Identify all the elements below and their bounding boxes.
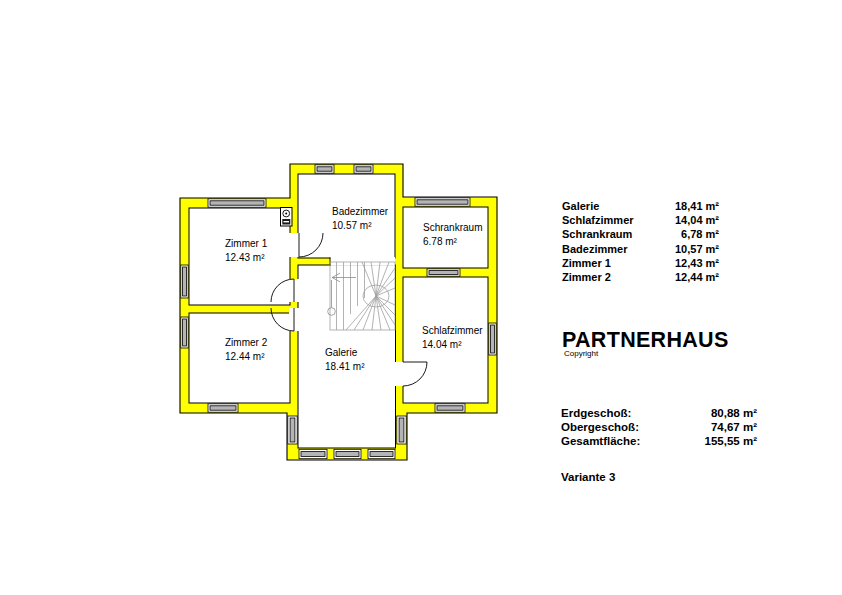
floor-plan-drawing: Zimmer 1 12.43 m² Zimmer 2 12.44 m² Bade… — [0, 0, 842, 595]
window-schlafzimmer-right — [489, 323, 496, 355]
window-bay-bottom-3 — [368, 449, 395, 458]
window-bay-right — [397, 416, 406, 444]
window-zimmer2-left — [181, 317, 188, 348]
window-zimmer2-bottom — [208, 404, 238, 412]
label-badezimmer-area: 10.57 m² — [332, 220, 372, 231]
floorplan-page: Zimmer 1 12.43 m² Zimmer 2 12.44 m² Bade… — [0, 0, 842, 595]
window-bay-bottom-1 — [299, 449, 327, 458]
label-badezimmer-name: Badezimmer — [332, 206, 389, 217]
window-top-band-1 — [315, 165, 334, 173]
label-zimmer2-name: Zimmer 2 — [225, 337, 268, 348]
window-bay-left — [288, 416, 297, 444]
label-zimmer1-name: Zimmer 1 — [225, 238, 268, 249]
window-schlafzimmer-bottom — [435, 404, 465, 412]
label-zimmer2-area: 12.44 m² — [225, 351, 265, 362]
chimney-icon — [281, 208, 293, 227]
window-zimmer1-left — [181, 265, 188, 298]
window-top-band-2 — [354, 165, 373, 173]
label-zimmer1-area: 12.43 m² — [225, 252, 265, 263]
label-schrankraum-name: Schrankraum — [423, 222, 482, 233]
label-galerie-name: Galerie — [325, 347, 358, 358]
window-schrankraum-top — [415, 198, 470, 206]
window-zimmer1-top — [208, 199, 266, 207]
label-schlafzimmer-name: Schlafzimmer — [422, 325, 483, 336]
window-bay-bottom-2 — [334, 449, 361, 458]
label-schrankraum-area: 6.78 m² — [423, 236, 458, 247]
label-galerie-area: 18.41 m² — [325, 361, 365, 372]
opening-schrankraum-divider — [427, 269, 460, 276]
label-schlafzimmer-area: 14.04 m² — [422, 339, 462, 350]
